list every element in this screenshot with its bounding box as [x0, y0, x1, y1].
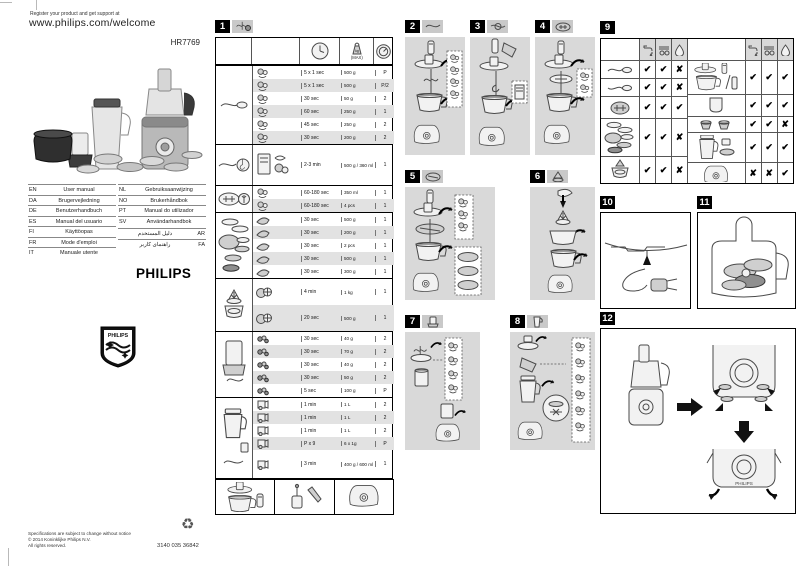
time-cell: 30 sec — [301, 349, 341, 355]
panel-7-number: 7 — [405, 315, 420, 328]
food-icon — [253, 267, 301, 277]
kneading-accessory-icon — [601, 79, 639, 97]
speed-cell: 2 — [375, 428, 394, 434]
time-cell: 30 sec — [301, 336, 341, 342]
speed-cell: P — [375, 70, 394, 76]
language-list-rtl: دليل المستخدم AR راهنمای کاربر FA — [118, 228, 206, 249]
slicing-disc-icon — [422, 170, 443, 183]
amount-cell: 1 L — [341, 428, 375, 433]
citrus-fruit-icon — [253, 286, 301, 299]
max-label: (MAX) — [351, 55, 363, 60]
mark-cell: ✘ — [761, 163, 777, 183]
mark-cell: ✔ — [761, 95, 777, 117]
time-cell: 5 sec — [301, 388, 341, 394]
table-row: 60 sec 250 g 1 — [253, 105, 394, 118]
language-list-right: NL Gebruiksaanwijzing NO Brukerhåndbok P… — [118, 184, 206, 226]
language-label: Benutzerhandbuch — [43, 208, 115, 214]
time-cell: 30 sec — [301, 230, 341, 236]
tap-water-icon — [639, 39, 655, 61]
crop-mark — [8, 548, 9, 566]
group-mini-chopper: 30 sec 40 g 2 30 sec 70 g 2 30 sec — [216, 331, 392, 397]
group-kneading: 2-3 min 500 g / 360 ml 1 — [216, 144, 392, 185]
time-cell: 30 sec — [301, 362, 341, 368]
language-label: Mode d'emploi — [43, 240, 115, 246]
speed-column-header — [374, 38, 392, 64]
language-item: EN User manual — [28, 184, 116, 195]
motor-unit-icon — [688, 163, 745, 183]
dough-icons — [253, 150, 301, 180]
philips-wordmark: PHILIPS — [136, 266, 191, 281]
blender-jar-set-icon — [688, 133, 745, 163]
panel-9-number: 9 — [600, 21, 615, 34]
mark-cell: ✔ — [655, 97, 671, 119]
language-item: NL Gebruiksaanwijzing — [118, 184, 206, 195]
group-citrus: 4 min 1 kg 1 20 sec 500 g 1 — [216, 278, 392, 331]
table-row: 30 sec 50 g 2 — [253, 371, 394, 384]
language-code: AR — [191, 231, 205, 237]
disc-assembly-diagram — [405, 187, 495, 300]
food-icon — [253, 399, 301, 410]
food-icon — [253, 241, 301, 251]
table-row: 20 sec 500 g 1 — [253, 305, 394, 331]
table-row: 60-180 sec 4 pcs 1 — [253, 199, 394, 212]
speed-cell: 1 — [375, 217, 394, 223]
table-row: 30 sec 300 g 1 — [253, 265, 394, 278]
amount-cell: 4 pcs — [341, 203, 375, 208]
language-item: DE Benutzerhandbuch — [28, 205, 116, 216]
emulsifying-assembly-diagram — [535, 37, 595, 155]
mark-cell: ✔ — [639, 157, 655, 183]
speed-cell: P — [375, 441, 394, 447]
tap-water-icon — [745, 39, 761, 61]
food-icon — [253, 68, 301, 78]
time-cell: 2-3 min — [301, 162, 341, 168]
food-icon — [253, 215, 301, 225]
language-code: SV — [119, 219, 133, 225]
food-icon — [253, 347, 301, 357]
amount-cell: 400 g / 600 ml — [341, 462, 375, 467]
mark-cell: ✔ — [745, 61, 761, 95]
food-icon — [253, 438, 301, 449]
damp-cloth-icon — [671, 39, 687, 61]
included-parts-strip — [215, 479, 394, 515]
group-emulsifying: 60-180 sec 350 ml 1 60-180 sec 4 pcs 1 — [216, 185, 392, 212]
crop-mark — [0, 2, 12, 3]
language-item: DA Brugervejledning — [28, 195, 116, 206]
table-row: 1 min 1 L 2 — [253, 424, 394, 437]
speed-cell: 2 — [375, 336, 394, 342]
kneading-assembly-diagram — [470, 37, 530, 155]
language-code: DE — [29, 208, 43, 214]
panel-11-number: 11 — [697, 196, 712, 209]
welcome-url: www.philips.com/welcome — [29, 17, 156, 29]
amount-cell: 1 L — [341, 415, 375, 420]
language-code: FA — [191, 242, 205, 248]
mark-cell: ✘ — [671, 157, 687, 183]
language-label: User manual — [43, 187, 115, 193]
time-cell: 5 x 1 sec — [301, 83, 341, 89]
mark-cell: ✔ — [655, 79, 671, 97]
time-cell: 1 min — [301, 428, 341, 434]
speed-cell: 1 — [375, 162, 394, 168]
table-row: 5 x 1 sec 500 g P/2 — [253, 79, 394, 92]
language-label: Gebruiksaanwijzing — [133, 187, 205, 193]
language-item: FI Käyttöopas — [28, 226, 116, 237]
blade-unit-icon — [601, 61, 639, 79]
amount-cell: 250 g — [341, 109, 375, 114]
speed-cell: P — [375, 388, 394, 394]
brand-on-base: PHILIPS — [735, 481, 753, 486]
time-cell: 30 sec — [301, 217, 341, 223]
motor-unit-icon — [335, 480, 393, 514]
mark-cell: ✘ — [745, 163, 761, 183]
speed-cell: 2 — [375, 402, 394, 408]
speed-cell: 1 — [375, 461, 394, 467]
time-cell: 4 min — [301, 289, 341, 295]
language-item: PT Manual do utilizador — [118, 205, 206, 216]
cord-storage-diagram — [600, 212, 691, 309]
amount-cell: 500 g — [341, 70, 375, 75]
language-code: DA — [29, 198, 43, 204]
speed-cell: 1 — [375, 289, 394, 295]
group-blender: 1 min 1 L 2 1 min 1 L 2 1 min — [216, 397, 392, 478]
bowl-lid-pusher-spatula-icon — [688, 61, 745, 95]
food-icon — [253, 412, 301, 423]
panel-2-number: 2 — [405, 20, 420, 33]
table-row: 45 sec 250 g 2 — [253, 118, 394, 131]
mark-cell: ✔ — [777, 61, 793, 95]
language-item: IT Manuale utente — [28, 247, 116, 258]
table-row: 30 sec 500 g 1 — [253, 252, 394, 265]
panel-4-number: 4 — [535, 20, 550, 33]
food-icon — [253, 94, 301, 104]
mark-cell: ✘ — [777, 117, 793, 133]
table-row: 1 min 1 L 2 — [253, 398, 394, 411]
mark-cell: ✔ — [777, 95, 793, 117]
language-code: IT — [29, 250, 43, 256]
part-number: 3140 035 36842 — [157, 543, 199, 549]
amount-cell: 500 g — [341, 83, 375, 88]
time-cell: 30 sec — [301, 269, 341, 275]
time-cell: P x 9 — [301, 441, 341, 447]
clock-icon — [311, 42, 329, 60]
amount-cell: 50 g — [341, 375, 375, 380]
citrus-press-icon — [216, 279, 253, 331]
kneading-accessory-icon — [487, 20, 508, 33]
bowl-lid-pusher-icon — [216, 480, 275, 514]
mark-cell: ✔ — [639, 119, 655, 157]
food-icon — [253, 228, 301, 238]
amount-cell: 50 g — [341, 96, 375, 101]
amount-cell: 70 g — [341, 349, 375, 354]
amount-cell: 40 g — [341, 336, 375, 341]
amount-cell: 100 g — [341, 388, 375, 393]
processing-guide-table: kg (MAX) 5 x 1 sec 500 — [215, 37, 393, 479]
food-icon — [253, 107, 301, 117]
amount-cell: 40 g — [341, 362, 375, 367]
food-icon — [253, 188, 301, 198]
language-label: دليل المستخدم — [119, 231, 191, 237]
speed-cell: 1 — [375, 203, 394, 209]
blender-icon — [216, 398, 253, 478]
table-row: 5 x 1 sec 500 g P — [253, 66, 394, 79]
mark-cell: ✔ — [655, 61, 671, 79]
kneading-accessory-icon — [216, 145, 253, 185]
mark-cell: ✘ — [671, 61, 687, 79]
language-label: Brugervejledning — [43, 198, 115, 204]
language-item: NO Brukerhåndbok — [118, 195, 206, 206]
svg-text:kg: kg — [355, 49, 359, 53]
mark-cell: ✔ — [655, 119, 671, 157]
speed-cell: 1 — [375, 269, 394, 275]
model-number: HR7769 — [30, 38, 200, 47]
cleaning-table: ✔ ✔ ✘ ✔ ✔ ✘ ✔ ✔ ✔ ✔ ✔ ✘ ✔ ✔ ✘ — [600, 38, 794, 184]
crop-mark — [36, 0, 37, 10]
language-code: FI — [29, 229, 43, 235]
inserts-discs-icon — [601, 119, 639, 157]
amount-cell: 500 g — [341, 256, 375, 261]
speed-dial-icon — [376, 44, 391, 59]
food-icon — [253, 201, 301, 211]
language-code: NO — [119, 198, 133, 204]
speed-cell: 2 — [375, 349, 394, 355]
language-label: Manual do utilizador — [133, 208, 205, 214]
speed-cell: 2 — [375, 415, 394, 421]
amount-cell: 300 g — [341, 269, 375, 274]
emulsifying-disc-icon — [601, 97, 639, 119]
group-discs: 30 sec 500 g 1 30 sec 200 g 1 30 sec — [216, 212, 392, 278]
manual-page: Register your product and get support at… — [0, 0, 802, 575]
mark-cell: ✔ — [761, 133, 777, 163]
time-cell: 60-180 sec — [301, 190, 341, 196]
panel-3-number: 3 — [470, 20, 485, 33]
speed-cell: 1 — [375, 315, 394, 321]
language-item: ES Manual del usuario — [28, 216, 116, 227]
panel-12-number: 12 — [600, 312, 615, 325]
footer-line3: All rights reserved. — [28, 543, 131, 549]
mark-cell: ✔ — [745, 133, 761, 163]
mark-cell: ✔ — [671, 97, 687, 119]
time-cell: 20 sec — [301, 315, 341, 321]
panel-1-number: 1 — [215, 20, 230, 33]
language-code: FR — [29, 240, 43, 246]
speed-cell: 2 — [375, 362, 394, 368]
amount-cell: 500 g — [341, 316, 375, 321]
panel-10-number: 10 — [600, 196, 615, 209]
feet-removal-diagram: PHILIPS — [600, 328, 796, 514]
time-cell: 1 min — [301, 415, 341, 421]
food-icon — [253, 425, 301, 436]
chopper-assembly-diagram — [405, 332, 480, 450]
tool-holder-spatula-icon — [275, 480, 334, 514]
language-label: Manual del usuario — [43, 219, 115, 225]
table-row: 30 sec 500 g 1 — [253, 213, 394, 226]
blender-assembly-diagram — [510, 332, 595, 450]
amount-cell: 1 kg — [341, 290, 375, 295]
food-icon — [253, 254, 301, 264]
food-icon — [253, 120, 301, 130]
language-code: NL — [119, 187, 133, 193]
panel-6-number: 6 — [530, 170, 545, 183]
footer-legal: Specifications are subject to change wit… — [28, 531, 131, 550]
table-row: 60-180 sec 350 ml 1 — [253, 186, 394, 199]
emulsifying-disc-icon — [216, 186, 253, 212]
table-row: 30 sec 50 g 2 — [253, 92, 394, 105]
table-row: 30 sec 40 g 2 — [253, 358, 394, 371]
weight-icon: kg — [350, 42, 364, 55]
food-icon — [253, 81, 301, 91]
time-cell: 45 sec — [301, 122, 341, 128]
time-cell: 60-180 sec — [301, 203, 341, 209]
language-item: SV Användarhandbok — [118, 216, 206, 227]
inserts-discs-icon — [216, 213, 253, 278]
mark-cell: ✔ — [639, 61, 655, 79]
recycle-icon: ♻ — [181, 517, 194, 532]
language-label: Käyttöopas — [43, 229, 115, 235]
table-row: 3 min 400 g / 600 ml 1 — [253, 450, 394, 478]
speed-cell: 1 — [375, 243, 394, 249]
table-row: 30 sec 200 g 1 — [253, 226, 394, 239]
mark-cell: ✔ — [745, 95, 761, 117]
mark-cell: ✔ — [761, 61, 777, 95]
language-item: راهنمای کاربر FA — [118, 239, 206, 250]
time-cell: 30 sec — [301, 256, 341, 262]
time-cell: 1 min — [301, 402, 341, 408]
mark-cell: ✔ — [639, 97, 655, 119]
time-cell: 30 sec — [301, 243, 341, 249]
amount-cell: 1 L — [341, 402, 375, 407]
food-icon — [253, 334, 301, 344]
blade-food-icon — [232, 20, 253, 33]
language-item: دليل المستخدم AR — [118, 228, 206, 239]
language-label: راهنمای کاربر — [119, 242, 191, 248]
amount-cell: 6 x 1g — [341, 441, 375, 446]
panel-8-number: 8 — [510, 315, 525, 328]
table-row: P x 9 6 x 1g P — [253, 437, 394, 450]
table-row: 5 sec 100 g P — [253, 384, 394, 397]
language-label: Användarhandbok — [133, 219, 205, 225]
table-row: 2-3 min 500 g / 360 ml 1 — [253, 145, 394, 185]
citrus-press-icon — [601, 157, 639, 183]
blade-unit-icon — [216, 66, 253, 144]
shield-text: PHILIPS — [108, 333, 129, 339]
speed-cell: 2 — [375, 375, 394, 381]
time-cell: 30 sec — [301, 135, 341, 141]
blender-icon — [527, 315, 548, 328]
time-cell: 3 min — [301, 461, 341, 467]
amount-cell: 200 g — [341, 135, 375, 140]
food-icon — [253, 386, 301, 396]
language-code: ES — [29, 219, 43, 225]
amount-cell: 200 g — [341, 230, 375, 235]
mark-cell: ✔ — [655, 157, 671, 183]
amount-cell: 2 pcs — [341, 243, 375, 248]
table-row: 30 sec 70 g 2 — [253, 345, 394, 358]
amount-cell: 500 g — [341, 217, 375, 222]
product-photo — [30, 55, 210, 180]
citrus-fruit-icon — [253, 312, 301, 325]
language-code: PT — [119, 208, 133, 214]
damp-cloth-icon — [777, 39, 793, 61]
food-icon — [253, 459, 301, 470]
panel-5-number: 5 — [405, 170, 420, 183]
mark-cell: ✔ — [777, 163, 793, 183]
mini-chopper-icon — [422, 315, 443, 328]
mark-cell: ✔ — [639, 79, 655, 97]
speed-cell: 2 — [375, 122, 394, 128]
amount-cell: 500 g / 360 ml — [341, 163, 375, 168]
table-row: 30 sec 200 g 2 — [253, 131, 394, 144]
mark-cell: ✘ — [671, 119, 687, 157]
speed-cell: 1 — [375, 109, 394, 115]
table-row: 1 min 1 L 2 — [253, 411, 394, 424]
table-row: 30 sec 40 g 2 — [253, 332, 394, 345]
table-row: 4 min 1 kg 1 — [253, 279, 394, 305]
food-icon — [253, 133, 301, 143]
chopper-beaker-icon — [688, 95, 745, 117]
dishwasher-icon — [655, 39, 671, 61]
citrus-assembly-diagram — [530, 187, 595, 300]
language-code: EN — [29, 187, 43, 193]
dishwasher-icon — [761, 39, 777, 61]
tool-holders-icon — [688, 117, 745, 133]
blade-unit-icon — [422, 20, 443, 33]
language-item: FR Mode d'emploi — [28, 237, 116, 248]
table-header-row: kg (MAX) — [216, 38, 392, 65]
language-list-left: EN User manual DA Brugervejledning DE Be… — [28, 184, 116, 258]
speed-cell: 2 — [375, 96, 394, 102]
mark-cell: ✔ — [745, 117, 761, 133]
time-cell: 60 sec — [301, 109, 341, 115]
table-row: 30 sec 2 pcs 1 — [253, 239, 394, 252]
time-cell: 5 x 1 sec — [301, 70, 341, 76]
speed-cell: 2 — [375, 135, 394, 141]
time-column-header — [300, 38, 340, 64]
emulsifying-disc-icon — [552, 20, 573, 33]
language-label: Brukerhåndbok — [133, 198, 205, 204]
group-blade-unit: 5 x 1 sec 500 g P 5 x 1 sec 500 g P/2 30 — [216, 65, 392, 144]
speed-cell: 1 — [375, 190, 394, 196]
time-cell: 30 sec — [301, 375, 341, 381]
citrus-press-icon — [547, 170, 568, 183]
mark-cell: ✔ — [761, 117, 777, 133]
disc-storage-diagram — [697, 212, 796, 309]
speed-cell: 1 — [375, 256, 394, 262]
food-icon — [253, 373, 301, 383]
food-icon — [253, 360, 301, 370]
mark-cell: ✘ — [671, 79, 687, 97]
mark-cell: ✔ — [777, 133, 793, 163]
language-label: Manuale utente — [43, 250, 115, 256]
speed-cell: P/2 — [375, 83, 394, 89]
amount-cell: 350 ml — [341, 190, 375, 195]
philips-shield-logo: PHILIPS — [100, 326, 136, 368]
mini-chopper-icon — [216, 332, 253, 397]
speed-cell: 1 — [375, 230, 394, 236]
amount-cell: 250 g — [341, 122, 375, 127]
max-weight-column-header: kg (MAX) — [340, 38, 374, 64]
blade-assembly-diagram — [405, 37, 465, 155]
time-cell: 30 sec — [301, 96, 341, 102]
